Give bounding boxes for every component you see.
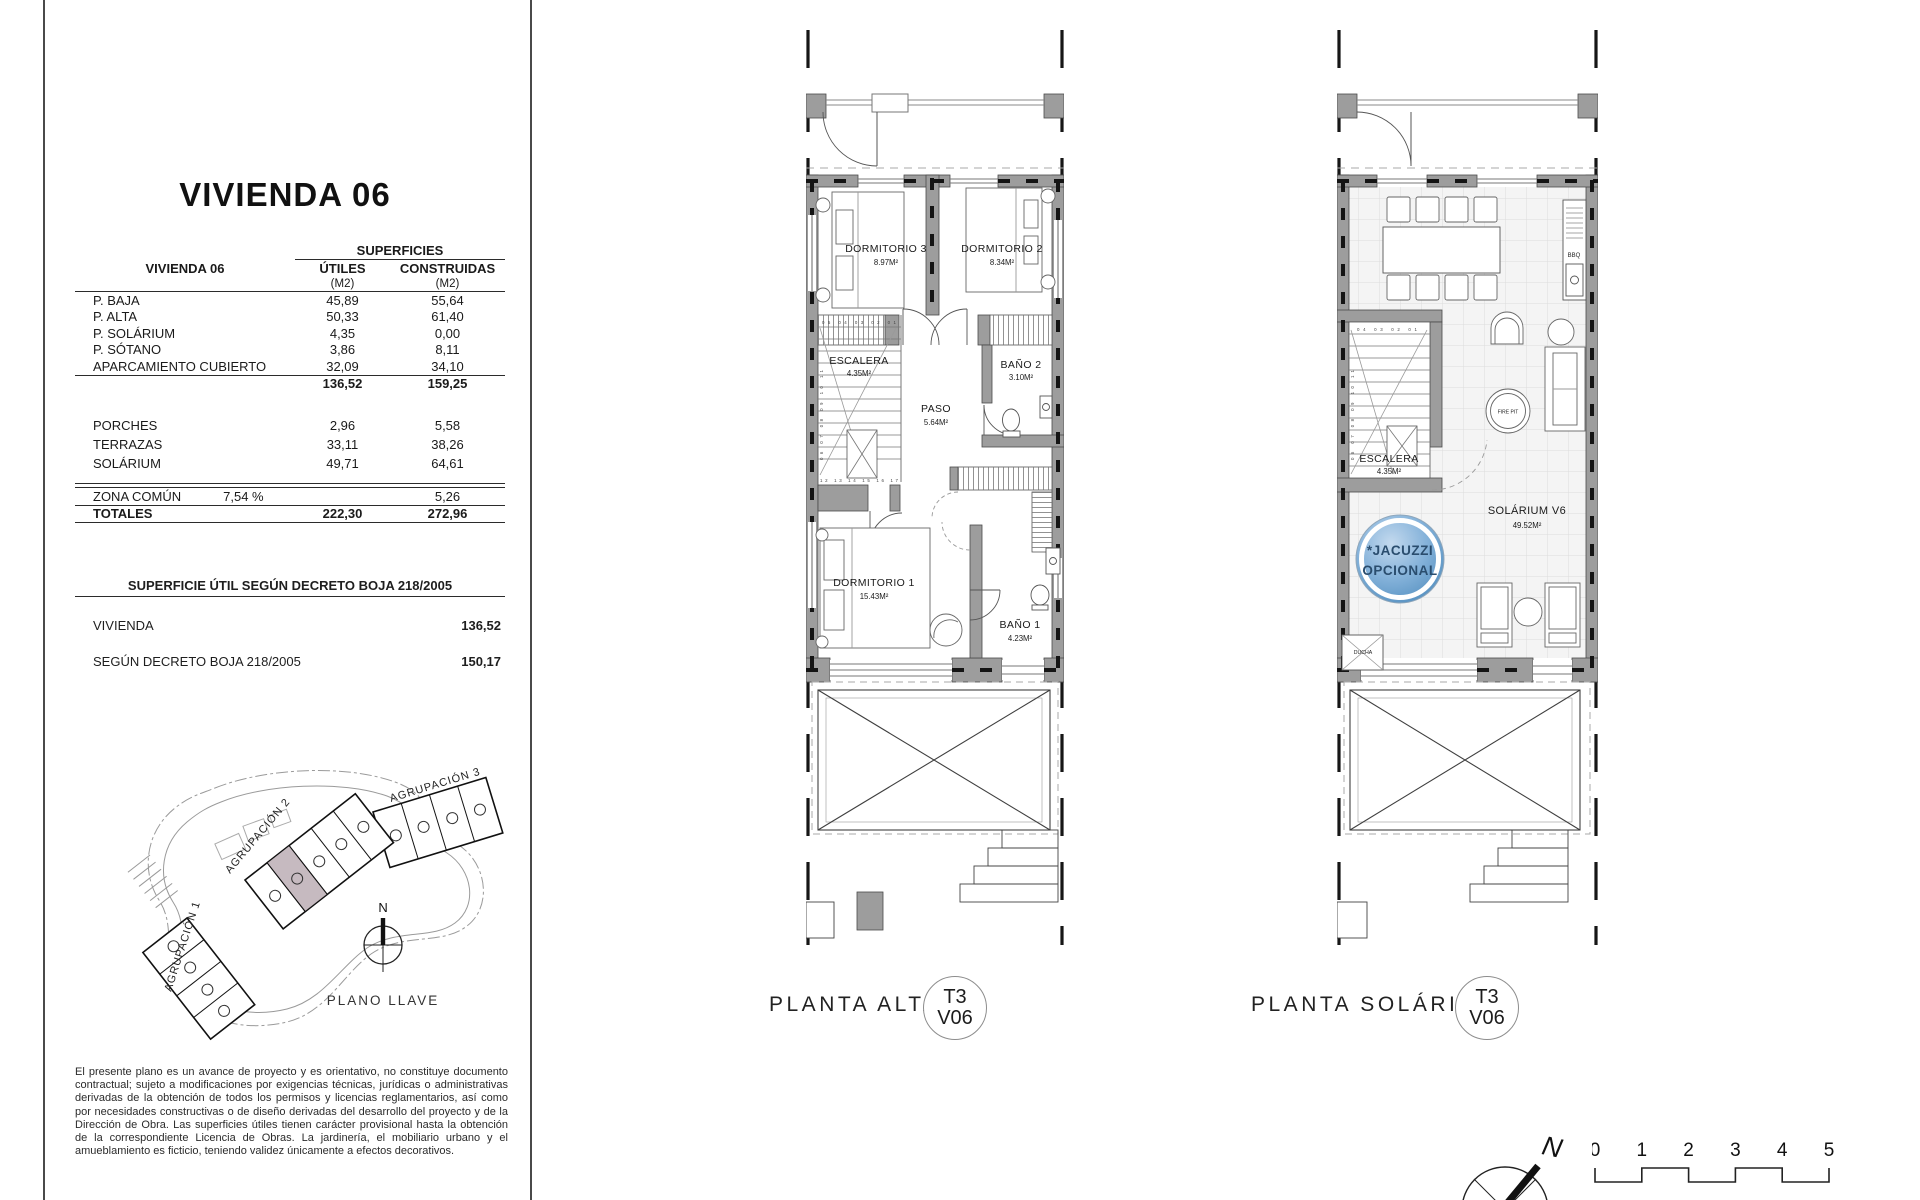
row-utiles: 2,96 <box>295 418 390 433</box>
scale-tick: 3 <box>1730 1140 1741 1161</box>
row-utiles: 50,33 <box>295 309 390 324</box>
zona-comun-row: ZONA COMÚN7,54 % 5,26 <box>75 488 505 505</box>
table-row: P. BAJA 45,89 55,64 <box>75 292 505 309</box>
room-label-dormitorio1: DORMITORIO 1 <box>833 577 915 589</box>
row-utiles: 32,09 <box>295 359 390 374</box>
planta-solarium-badge: T3 V06 <box>1455 976 1519 1040</box>
firepit-label: FIRE PIT <box>1498 410 1519 416</box>
unit-construidas: (M2) <box>390 278 505 290</box>
table-row: P. ALTA 50,33 61,40 <box>75 309 505 326</box>
room-area-dormitorio2: 8.34M² <box>990 258 1015 267</box>
room-area-paso: 5.64M² <box>924 418 949 427</box>
table-row: P. SOLÁRIUM 4,35 0,00 <box>75 325 505 342</box>
row-construidas: 5,58 <box>390 418 505 433</box>
unit-utiles: (M2) <box>295 278 390 290</box>
planta-alta-caption: PLANTA ALTA <box>769 993 941 1017</box>
planta-alta-drawing: 05 04 03 02 01 06 07 08 09 10 11 12 13 1… <box>806 30 1064 945</box>
col-header-vivienda: VIVIENDA 06 <box>75 261 295 276</box>
jacuzzi-label-line1: *JACUZZI <box>1367 543 1433 558</box>
decreto-row-value: 136,52 <box>461 618 501 633</box>
row-utiles: 4,35 <box>295 326 390 341</box>
row-construidas: 64,61 <box>390 456 505 471</box>
disclaimer-text: El presente plano es un avance de proyec… <box>75 1066 508 1158</box>
room-label-solarium: SOLÁRIUM V6 <box>1488 504 1566 517</box>
badge-type: T3 <box>1475 987 1498 1008</box>
row-utiles: 33,11 <box>295 437 390 452</box>
row-construidas: 34,10 <box>390 359 505 374</box>
room-label-paso: PASO <box>921 403 951 415</box>
subtotal-utiles: 136,52 <box>295 376 390 391</box>
badge-unit: V06 <box>937 1008 973 1029</box>
room-label-bano1: BAÑO 1 <box>1000 618 1041 631</box>
table-header-row: VIVIENDA 06 ÚTILES CONSTRUIDAS <box>75 260 505 277</box>
scale-tick: 0 <box>1592 1140 1600 1161</box>
scale-bar: 0 1 2 3 4 5 <box>1592 1136 1837 1200</box>
lower-terrace <box>1337 682 1590 938</box>
row-construidas: 55,64 <box>390 293 505 308</box>
compass-icon: N <box>1440 1118 1590 1200</box>
row-utiles: 45,89 <box>295 293 390 308</box>
row-construidas: 8,11 <box>390 342 505 357</box>
balcony-top <box>1337 94 1598 168</box>
room-area-escalera: 4.35M² <box>847 369 872 378</box>
row-label: P. SOLÁRIUM <box>75 326 295 341</box>
scale-tick: 4 <box>1777 1140 1788 1161</box>
room-label-dormitorio2: DORMITORIO 2 <box>961 243 1043 255</box>
row-label: P. SÓTANO <box>75 342 295 357</box>
totales-construidas: 272,96 <box>390 506 505 521</box>
table-units-row: (M2) (M2) <box>75 277 505 291</box>
scale-tick: 5 <box>1824 1140 1835 1161</box>
decreto-section: SUPERFICIE ÚTIL SEGÚN DECRETO BOJA 218/2… <box>75 578 505 669</box>
surfaces-table: SUPERFICIES VIVIENDA 06 ÚTILES CONSTRUID… <box>75 243 505 523</box>
room-area-bano1: 4.23M² <box>1008 634 1033 643</box>
scale-tick: 1 <box>1637 1140 1648 1161</box>
room-label-escalera: ESCALERA <box>829 355 888 367</box>
room-area-escalera: 4.35M² <box>1377 467 1402 476</box>
door-arc <box>823 112 877 166</box>
totales-label: TOTALES <box>75 506 295 521</box>
room-area-dormitorio3: 8.97M² <box>874 258 899 267</box>
row-utiles: 3,86 <box>295 342 390 357</box>
zona-comun-percent: 7,54 % <box>223 489 263 504</box>
subtotal-construidas: 159,25 <box>390 376 505 391</box>
zona-comun-construidas: 5,26 <box>390 489 505 504</box>
col-header-construidas: CONSTRUIDAS <box>390 261 505 276</box>
shower: DUCHA <box>1342 635 1383 670</box>
decreto-row-label: SEGÚN DECRETO BOJA 218/2005 <box>93 654 301 669</box>
decreto-row-value: 150,17 <box>461 654 501 669</box>
row-construidas: 38,26 <box>390 437 505 452</box>
site-compass-north-label: N <box>378 900 387 915</box>
row-utiles: 49,71 <box>295 456 390 471</box>
row-label: P. ALTA <box>75 309 295 324</box>
row-label: PORCHES <box>75 418 295 433</box>
bbq-counter <box>1563 200 1586 300</box>
decreto-heading: SUPERFICIE ÚTIL SEGÚN DECRETO BOJA 218/2… <box>75 578 505 597</box>
bbq-label: BBQ <box>1568 253 1581 259</box>
row-construidas: 61,40 <box>390 309 505 324</box>
room-area-bano2: 3.10M² <box>1009 373 1034 382</box>
jacuzzi: *JACUZZI OPCIONAL <box>1356 515 1444 603</box>
lower-terrace <box>806 682 1058 938</box>
site-plan-drawing: AGRUPACIÓN 3 AGRUPACIÓN 2 AGRUPACIÓN 1 N… <box>95 760 515 1050</box>
planta-solarium-drawing: 04 03 02 01 06 07 08 09 10 11 BBQ FIRE P… <box>1337 30 1598 945</box>
decreto-row: SEGÚN DECRETO BOJA 218/2005 150,17 <box>75 654 505 669</box>
table-row: PORCHES 2,96 5,58 <box>75 416 505 435</box>
row-label: P. BAJA <box>75 293 295 308</box>
row-label: SOLÁRIUM <box>75 456 295 471</box>
room-label-escalera: ESCALERA <box>1359 453 1418 465</box>
zona-comun-label: ZONA COMÚN7,54 % <box>75 489 295 504</box>
row-label: APARCAMIENTO CUBIERTO <box>75 359 295 374</box>
table-row: SOLÁRIUM 49,71 64,61 <box>75 454 505 473</box>
site-cluster-agrupacion1 <box>143 918 255 1039</box>
planta-alta-badge: T3 V06 <box>923 976 987 1040</box>
totales-row: TOTALES 222,30 272,96 <box>75 506 505 523</box>
balcony-top <box>806 94 1064 168</box>
ducha-label: DUCHA <box>1354 650 1373 656</box>
badge-type: T3 <box>943 987 966 1008</box>
decreto-row-label: VIVIENDA <box>93 618 154 633</box>
table-row: TERRAZAS 33,11 38,26 <box>75 435 505 454</box>
row-construidas: 0,00 <box>390 326 505 341</box>
panel-divider-line <box>530 0 532 1200</box>
table-subtotal-row: 136,52 159,25 <box>75 376 505 393</box>
compass-north-label: N <box>1540 1130 1566 1164</box>
room-label-bano2: BAÑO 2 <box>1001 358 1042 371</box>
door-arc <box>1357 112 1411 166</box>
decreto-row: VIVIENDA 136,52 <box>75 618 505 633</box>
table-row: P. SÓTANO 3,86 8,11 <box>75 342 505 359</box>
badge-unit: V06 <box>1469 1008 1505 1029</box>
totales-utiles: 222,30 <box>295 506 390 521</box>
room-area-solarium: 49.52M² <box>1513 521 1542 530</box>
col-header-utiles: ÚTILES <box>295 261 390 276</box>
scale-tick: 2 <box>1683 1140 1694 1161</box>
room-area-dormitorio1: 15.43M² <box>860 592 889 601</box>
site-cluster-agrupacion3 <box>373 778 503 868</box>
table-group-header-row: SUPERFICIES <box>75 243 505 260</box>
site-plan-caption: PLANO LLAVE <box>327 993 440 1008</box>
page-edge-line <box>43 0 45 1200</box>
jacuzzi-label-line2: OPCIONAL <box>1362 563 1437 578</box>
table-group-header: SUPERFICIES <box>295 243 505 260</box>
scale-bar-path <box>1595 1168 1829 1182</box>
site-compass-icon: N <box>364 900 402 972</box>
page-title: VIVIENDA 06 <box>60 176 510 214</box>
room-label-dormitorio3: DORMITORIO 3 <box>845 243 927 255</box>
row-label: TERRAZAS <box>75 437 295 452</box>
table-row: APARCAMIENTO CUBIERTO 32,09 34,10 <box>75 358 505 375</box>
